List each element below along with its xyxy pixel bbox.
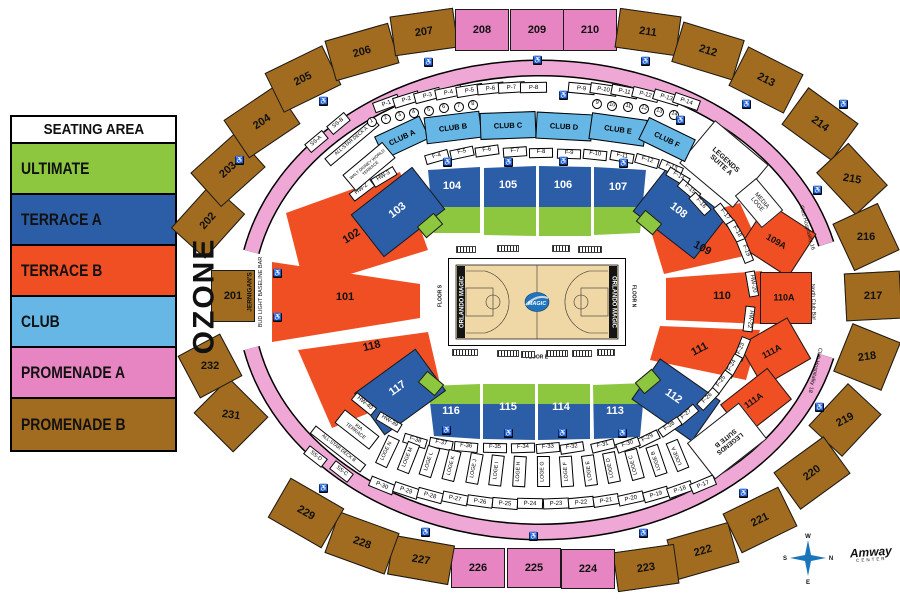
- label-ozone: OZONE: [188, 238, 220, 355]
- section-label: 214: [809, 114, 831, 134]
- courtside-table-row: [452, 349, 478, 356]
- section-210[interactable]: 210: [563, 9, 617, 51]
- section-label: 227: [411, 552, 431, 567]
- courtside-table-row: [497, 350, 519, 357]
- wheelchair-icon: ♿: [533, 56, 542, 65]
- wheelchair-icon: ♿: [273, 313, 282, 322]
- wheelchair-icon: ♿: [559, 157, 568, 166]
- section-label: 226: [469, 562, 487, 574]
- wheelchair-icon: ♿: [421, 528, 430, 537]
- suite-box-f-33[interactable]: F-33: [536, 442, 561, 454]
- section-211[interactable]: 211: [615, 8, 682, 56]
- section-label: 223: [636, 561, 656, 575]
- section-label: 204: [251, 112, 273, 132]
- wheelchair-icon: ♿: [559, 91, 568, 100]
- courtside-table-row: [578, 246, 602, 253]
- section-label: 206: [352, 44, 373, 61]
- svg-text:ORLANDO MAGIC: ORLANDO MAGIC: [460, 275, 466, 328]
- section-label: 202: [197, 210, 218, 232]
- suite-box-f-7[interactable]: F-7: [503, 146, 528, 158]
- wheelchair-icon: ♿: [618, 429, 627, 438]
- section-label: 220: [801, 463, 823, 483]
- section-club-c[interactable]: CLUB C: [480, 111, 537, 140]
- section-label: 218: [857, 350, 877, 364]
- section-label: 210: [581, 24, 599, 36]
- courtside-table-row: [552, 245, 570, 252]
- section-label: 229: [295, 503, 317, 523]
- section-label-101: 101: [336, 292, 354, 304]
- wheelchair-icon: ♿: [815, 403, 824, 412]
- label-floor-n: FLOOR N: [630, 285, 635, 308]
- wheelchair-icon: ♿: [619, 159, 628, 168]
- section-label: 201: [224, 290, 242, 302]
- wheelchair-icon: ♿: [813, 186, 822, 195]
- section-label: 231: [221, 408, 241, 422]
- section-label: 212: [697, 43, 718, 60]
- label-bud-light-baseline-bar: BUD LIGHT BASELINE BAR: [259, 257, 265, 328]
- suite-box-loge-g[interactable]: LOGE G: [536, 456, 549, 487]
- courtside-table-row: [521, 351, 535, 358]
- label-floor-s: FLOOR S: [438, 285, 443, 307]
- compass-rose: WNES: [780, 530, 836, 586]
- section-label-107: 107: [609, 182, 627, 194]
- wheelchair-icon: ♿: [235, 156, 244, 165]
- section-label: 228: [351, 534, 372, 552]
- label-jernigans: JERNIGAN'S: [248, 272, 255, 311]
- section-label: 217: [864, 290, 882, 302]
- courtside-table-row: [572, 350, 592, 357]
- suite-box-loge-h[interactable]: LOGE H: [513, 456, 528, 488]
- wheelchair-icon: ♿: [319, 97, 328, 106]
- svg-text:W: W: [805, 534, 811, 540]
- section-label-113: 113: [606, 406, 624, 418]
- section-label: 221: [749, 511, 771, 530]
- section-label: 225: [525, 562, 543, 574]
- wheelchair-icon: ♿: [558, 429, 567, 438]
- suite-box-f-34[interactable]: F-34: [511, 443, 535, 454]
- section-label: 209: [528, 24, 546, 36]
- suite-box-p-23[interactable]: P-23: [543, 498, 569, 510]
- section-label-110: 110: [713, 291, 731, 303]
- suite-box-f-35[interactable]: F-35: [483, 443, 507, 453]
- section-label: 224: [579, 563, 597, 575]
- suite-box-p-25[interactable]: P-25: [491, 497, 518, 510]
- wheelchair-icon: ♿: [504, 158, 513, 167]
- section-label: 208: [473, 24, 491, 36]
- wheelchair-icon: ♿: [739, 489, 748, 498]
- wheelchair-icon: ♿: [529, 532, 538, 541]
- wheelchair-icon: ♿: [676, 116, 685, 125]
- section-label: 219: [834, 410, 856, 429]
- suite-box-f-8[interactable]: F-8: [529, 148, 553, 158]
- svg-text:S: S: [783, 556, 787, 562]
- wheelchair-icon: ♿: [443, 158, 452, 167]
- section-label-115: 115: [499, 402, 517, 414]
- courtside-table-row: [597, 349, 615, 356]
- wheelchair-icon: ♿: [442, 426, 451, 435]
- section-label: 222: [693, 543, 714, 560]
- section-label: 232: [201, 360, 219, 372]
- section-208[interactable]: 208: [455, 9, 509, 51]
- section-label: 216: [857, 231, 875, 243]
- suite-box-p-8[interactable]: P-8: [519, 81, 546, 92]
- suite-box-p-24[interactable]: P-24: [517, 498, 543, 510]
- courtside-table-row: [456, 246, 476, 253]
- section-224[interactable]: 224: [561, 549, 615, 589]
- section-217[interactable]: 217: [844, 271, 900, 322]
- wheelchair-icon: ♿: [639, 529, 648, 538]
- svg-text:MAGIC: MAGIC: [528, 301, 547, 307]
- section-label: 213: [755, 70, 777, 89]
- section-label-116: 116: [442, 406, 460, 418]
- courtside-table-row: [497, 245, 519, 252]
- wheelchair-icon: ♿: [424, 58, 433, 67]
- svg-text:E: E: [806, 580, 810, 586]
- suite-box-loge-f[interactable]: LOGE F: [559, 456, 574, 488]
- courtside-table-row: [546, 350, 568, 357]
- section-223[interactable]: 223: [613, 544, 680, 592]
- section-label: 207: [414, 25, 434, 39]
- label-north-club-bar: North Club Bar: [808, 284, 815, 321]
- wheelchair-icon: ♿: [742, 100, 751, 109]
- wheelchair-icon: ♿: [273, 269, 282, 278]
- section-label-106: 106: [554, 180, 572, 192]
- wheelchair-icon: ♿: [504, 429, 513, 438]
- section-label: 215: [842, 171, 862, 186]
- section-label-104: 104: [443, 181, 461, 193]
- section-209[interactable]: 209: [510, 9, 564, 51]
- amway-center-seating-map: SEATING AREA ULTIMATETERRACE ATERRACE BC…: [0, 0, 900, 600]
- svg-text:N: N: [829, 556, 833, 562]
- section-226[interactable]: 226: [451, 548, 505, 588]
- section-225[interactable]: 225: [507, 548, 561, 588]
- section-label-105: 105: [499, 180, 517, 192]
- section-label-110a: 110A: [773, 293, 794, 302]
- svg-text:ORLANDO MAGIC: ORLANDO MAGIC: [611, 276, 617, 329]
- section-club-d[interactable]: CLUB D: [535, 111, 592, 141]
- wheelchair-icon: ♿: [641, 57, 650, 66]
- section-label: 211: [638, 25, 657, 39]
- basketball-court: ORLANDO MAGICORLANDO MAGICMAGIC: [448, 258, 626, 346]
- section-label-114: 114: [552, 402, 570, 414]
- wheelchair-icon: ♿: [319, 484, 328, 493]
- wheelchair-icon: ♿: [839, 100, 848, 109]
- section-label: 205: [292, 70, 314, 89]
